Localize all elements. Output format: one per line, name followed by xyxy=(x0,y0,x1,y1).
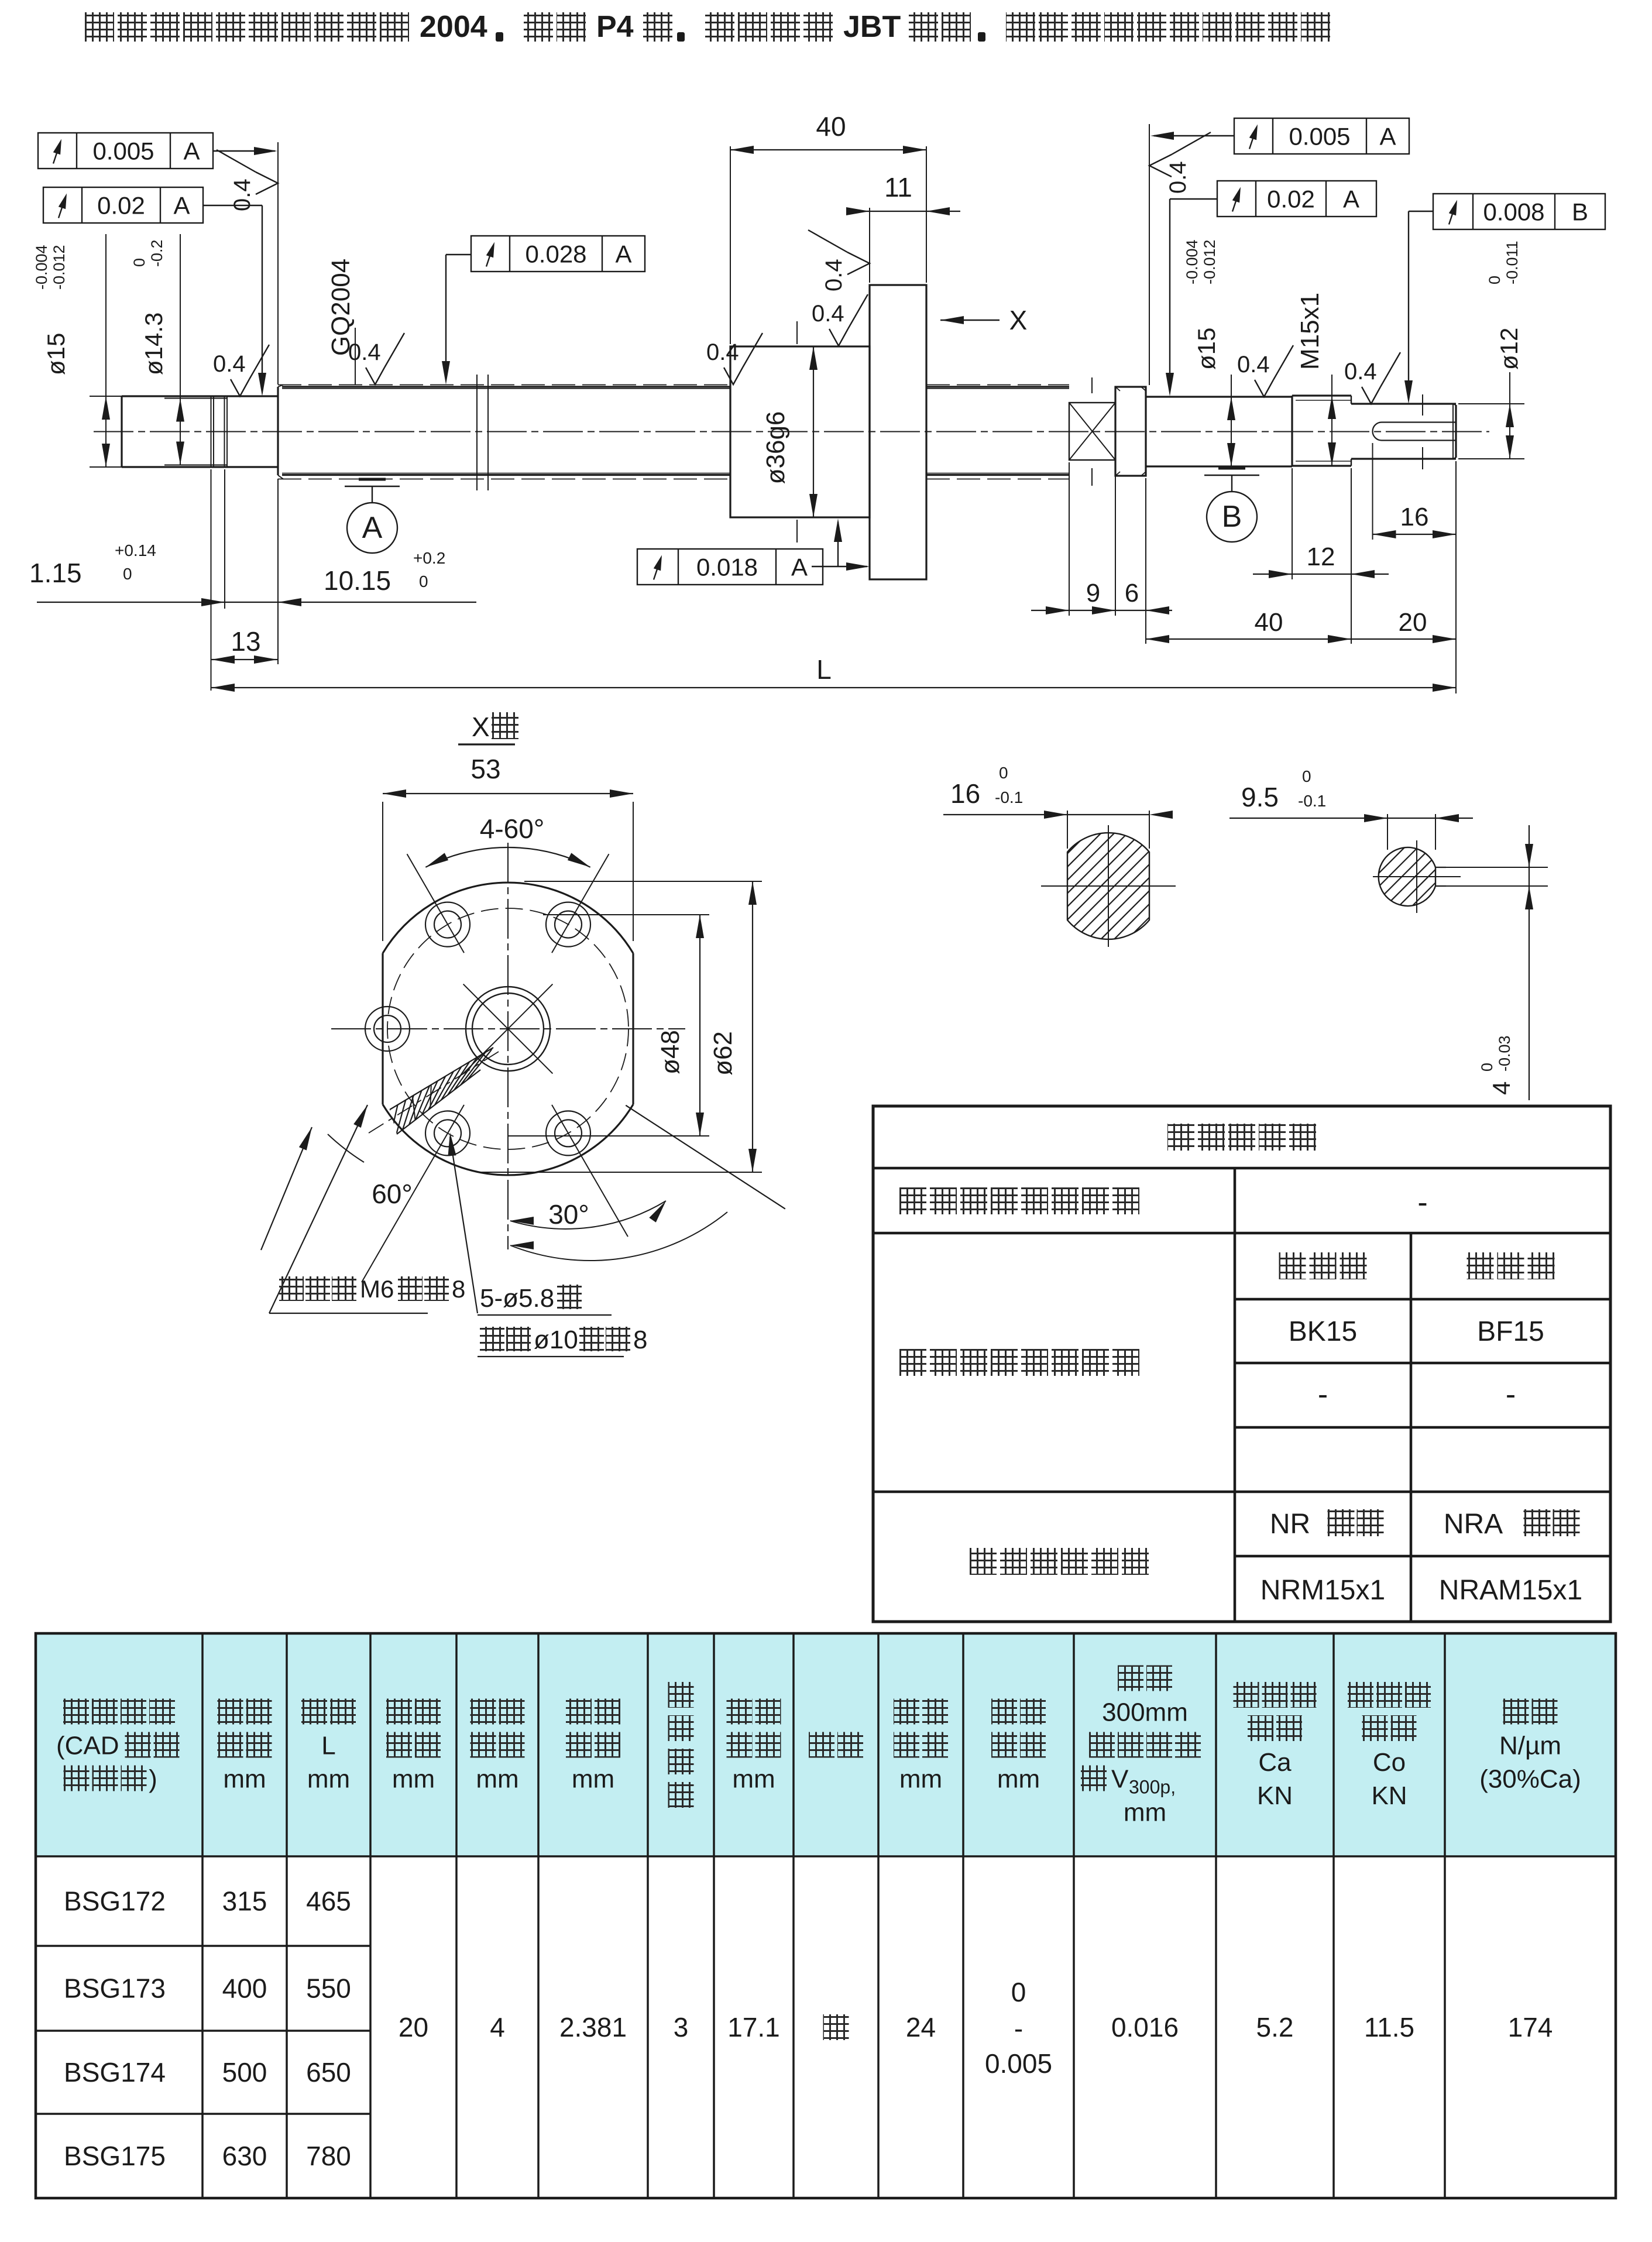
svg-text:0.018: 0.018 xyxy=(696,554,758,581)
svg-text:-0.03: -0.03 xyxy=(1496,1035,1513,1072)
svg-text:10.15: 10.15 xyxy=(324,565,391,596)
svg-text:9.5: 9.5 xyxy=(1241,782,1279,812)
svg-text:16: 16 xyxy=(950,778,980,809)
svg-text:0.005: 0.005 xyxy=(1289,123,1350,150)
svg-text:8: 8 xyxy=(452,1275,465,1303)
svg-text:0.028: 0.028 xyxy=(525,241,586,268)
svg-text:8: 8 xyxy=(633,1326,647,1354)
svg-text:mm: mm xyxy=(899,1765,942,1794)
svg-text:-0.004: -0.004 xyxy=(33,245,50,290)
svg-text:M15x1: M15x1 xyxy=(1296,293,1324,370)
svg-text:Co: Co xyxy=(1373,1748,1406,1777)
svg-text:Ca: Ca xyxy=(1258,1748,1292,1777)
svg-text:4: 4 xyxy=(490,2012,505,2042)
svg-text:mm: mm xyxy=(1124,1798,1166,1827)
svg-text:0: 0 xyxy=(1486,276,1503,284)
svg-text:-: - xyxy=(1506,1378,1516,1412)
svg-text:12: 12 xyxy=(1307,543,1335,571)
svg-text:mm: mm xyxy=(223,1765,266,1794)
svg-text:0.4: 0.4 xyxy=(1165,161,1191,194)
svg-text:0.4: 0.4 xyxy=(348,339,381,365)
svg-text:mm: mm xyxy=(476,1765,518,1794)
svg-text:2.381: 2.381 xyxy=(559,2012,627,2042)
svg-text:V: V xyxy=(1111,1765,1129,1794)
svg-text:0.008: 0.008 xyxy=(1483,198,1544,226)
svg-text:3: 3 xyxy=(674,2012,689,2042)
svg-text:mm: mm xyxy=(732,1765,775,1794)
svg-text:6: 6 xyxy=(1125,579,1139,607)
svg-text:53: 53 xyxy=(470,754,500,784)
svg-text:0.005: 0.005 xyxy=(985,2048,1052,2079)
svg-text:-0.1: -0.1 xyxy=(995,788,1023,806)
svg-text:0.4: 0.4 xyxy=(1237,352,1270,377)
svg-text:A: A xyxy=(1379,123,1396,150)
svg-text:0.02: 0.02 xyxy=(97,192,145,219)
svg-text:L: L xyxy=(321,1732,335,1760)
svg-text:300p,: 300p, xyxy=(1129,1777,1176,1798)
svg-text:B: B xyxy=(1572,198,1588,226)
svg-text:NRM15x1: NRM15x1 xyxy=(1261,1575,1385,1606)
svg-text:5-ø5.8: 5-ø5.8 xyxy=(480,1284,554,1313)
svg-text:ø12: ø12 xyxy=(1495,328,1523,370)
svg-text:): ) xyxy=(149,1765,157,1794)
svg-text:BSG174: BSG174 xyxy=(64,2057,166,2088)
svg-text:0.02: 0.02 xyxy=(1267,186,1315,213)
svg-text:4: 4 xyxy=(1488,1081,1515,1095)
svg-text:17.1: 17.1 xyxy=(727,2012,780,2042)
svg-text:BF15: BF15 xyxy=(1477,1316,1544,1347)
svg-text:-: - xyxy=(1318,1378,1328,1412)
svg-text:mm: mm xyxy=(997,1765,1040,1794)
svg-text:20: 20 xyxy=(399,2012,428,2042)
svg-text:(CAD: (CAD xyxy=(56,1732,119,1760)
svg-text:A: A xyxy=(173,192,190,219)
svg-text:630: 630 xyxy=(222,2141,267,2171)
svg-text:-: - xyxy=(1014,2013,1023,2044)
svg-text:P4: P4 xyxy=(596,10,634,44)
svg-text:(30%Ca): (30%Ca) xyxy=(1479,1765,1581,1794)
svg-text:M6: M6 xyxy=(360,1275,394,1303)
svg-text:9: 9 xyxy=(1086,579,1100,607)
svg-text:0: 0 xyxy=(1011,1977,1026,2007)
svg-text:ø15: ø15 xyxy=(42,333,70,375)
svg-text:ø48: ø48 xyxy=(656,1030,685,1074)
svg-text:KN: KN xyxy=(1371,1781,1407,1810)
svg-text:ø10: ø10 xyxy=(534,1326,578,1354)
svg-text:0.4: 0.4 xyxy=(706,339,739,365)
svg-text:20: 20 xyxy=(1399,608,1427,637)
svg-text:300mm: 300mm xyxy=(1102,1698,1188,1727)
svg-text:0.4: 0.4 xyxy=(213,351,246,377)
svg-text:BSG173: BSG173 xyxy=(64,1973,166,2004)
svg-text:-0.012: -0.012 xyxy=(1201,239,1218,284)
svg-text:1.15: 1.15 xyxy=(29,558,82,588)
svg-text:2004: 2004 xyxy=(420,10,487,44)
svg-text:N/µm: N/µm xyxy=(1499,1732,1561,1760)
svg-text:+0.2: +0.2 xyxy=(413,549,445,567)
svg-text:-0.2: -0.2 xyxy=(148,239,166,267)
svg-text:0: 0 xyxy=(130,258,148,267)
svg-text:ø14.3: ø14.3 xyxy=(140,313,167,375)
svg-text:60°: 60° xyxy=(372,1179,413,1209)
svg-text:13: 13 xyxy=(231,626,260,657)
svg-text:500: 500 xyxy=(222,2057,267,2088)
svg-text:0.4: 0.4 xyxy=(812,301,844,327)
svg-text:A: A xyxy=(615,241,631,268)
svg-text:315: 315 xyxy=(222,1886,267,1917)
svg-text:-0.004: -0.004 xyxy=(1183,239,1201,284)
svg-text:A: A xyxy=(791,554,808,581)
svg-text:550: 550 xyxy=(306,1973,351,2004)
svg-text:X: X xyxy=(1009,305,1028,335)
svg-text:-0.012: -0.012 xyxy=(50,245,68,290)
svg-text:mm: mm xyxy=(307,1765,350,1794)
svg-text:ø15: ø15 xyxy=(1193,328,1220,370)
svg-text:11: 11 xyxy=(884,172,912,202)
svg-text:X: X xyxy=(472,712,490,742)
svg-text:L: L xyxy=(816,654,832,685)
svg-text:0.016: 0.016 xyxy=(1111,2012,1179,2042)
svg-text:16: 16 xyxy=(1400,503,1429,531)
svg-text:4-60°: 4-60° xyxy=(480,813,544,844)
svg-text:5.2: 5.2 xyxy=(1256,2012,1294,2042)
svg-text:ø62: ø62 xyxy=(709,1031,737,1076)
svg-text:A: A xyxy=(362,511,383,545)
svg-text:-0.1: -0.1 xyxy=(1298,792,1326,810)
svg-text:0: 0 xyxy=(419,572,428,590)
svg-text:0: 0 xyxy=(999,764,1008,782)
svg-text:0: 0 xyxy=(1302,767,1311,785)
svg-text:30°: 30° xyxy=(548,1199,589,1230)
svg-text:0: 0 xyxy=(1478,1063,1496,1072)
svg-text:+0.14: +0.14 xyxy=(115,541,156,559)
svg-text:780: 780 xyxy=(306,2141,351,2171)
svg-text:40: 40 xyxy=(816,111,846,142)
svg-text:650: 650 xyxy=(306,2057,351,2088)
svg-text:0.4: 0.4 xyxy=(1344,359,1377,384)
svg-text:A: A xyxy=(1343,186,1359,213)
svg-text:ø36g6: ø36g6 xyxy=(761,411,790,485)
svg-text:BSG175: BSG175 xyxy=(64,2141,166,2171)
svg-text:0: 0 xyxy=(123,565,132,583)
svg-text:BK15: BK15 xyxy=(1289,1316,1357,1347)
svg-text:-0.011: -0.011 xyxy=(1503,241,1521,284)
svg-text:174: 174 xyxy=(1508,2012,1553,2042)
svg-text:465: 465 xyxy=(306,1886,351,1917)
svg-text:0.4: 0.4 xyxy=(821,259,847,291)
svg-text:JBT: JBT xyxy=(843,10,901,44)
svg-text:A: A xyxy=(183,138,200,165)
svg-text:mm: mm xyxy=(392,1765,435,1794)
svg-text:NRA: NRA xyxy=(1444,1509,1503,1540)
svg-text:BSG172: BSG172 xyxy=(64,1886,166,1917)
svg-text:0.005: 0.005 xyxy=(92,138,154,165)
svg-text:-: - xyxy=(1417,1186,1427,1220)
svg-text:mm: mm xyxy=(572,1765,614,1794)
svg-text:40: 40 xyxy=(1255,608,1283,637)
svg-text:KN: KN xyxy=(1257,1781,1293,1810)
svg-text:11.5: 11.5 xyxy=(1364,2012,1414,2042)
svg-text:NRAM15x1: NRAM15x1 xyxy=(1439,1575,1582,1606)
svg-text:B: B xyxy=(1222,500,1242,534)
svg-text:NR: NR xyxy=(1270,1509,1310,1540)
svg-text:0.4: 0.4 xyxy=(229,178,255,211)
svg-text:400: 400 xyxy=(222,1973,267,2004)
svg-text:24: 24 xyxy=(906,2012,936,2042)
